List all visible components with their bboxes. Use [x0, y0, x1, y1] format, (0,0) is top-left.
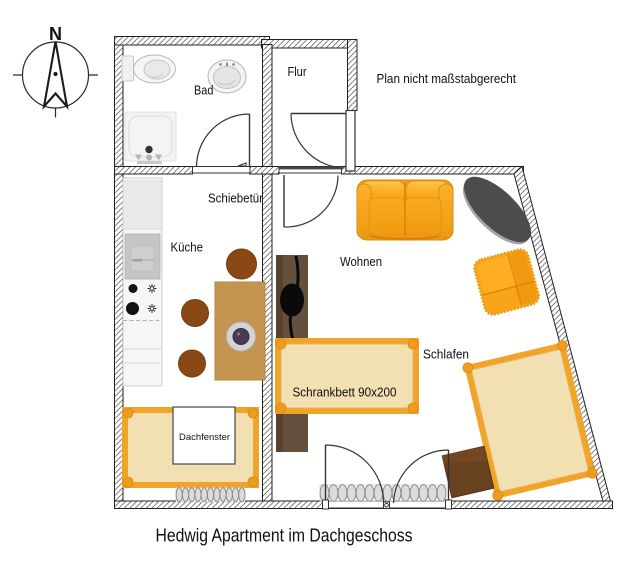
svg-text:Schrankbett 90x200: Schrankbett 90x200	[293, 385, 397, 400]
svg-text:Flur: Flur	[288, 64, 308, 79]
svg-text:Küche: Küche	[171, 239, 204, 254]
svg-text:N: N	[49, 24, 62, 44]
svg-text:Schiebetür: Schiebetür	[208, 191, 264, 206]
svg-text:Dachfenster: Dachfenster	[179, 432, 230, 443]
svg-text:Plan nicht maßstabgerecht: Plan nicht maßstabgerecht	[377, 71, 517, 86]
svg-text:Hedwig Apartment im Dachgescho: Hedwig Apartment im Dachgeschoss	[156, 526, 413, 546]
svg-text:Wohnen: Wohnen	[340, 254, 382, 269]
svg-text:Schlafen: Schlafen	[423, 347, 469, 362]
svg-text:Bad: Bad	[194, 83, 213, 98]
